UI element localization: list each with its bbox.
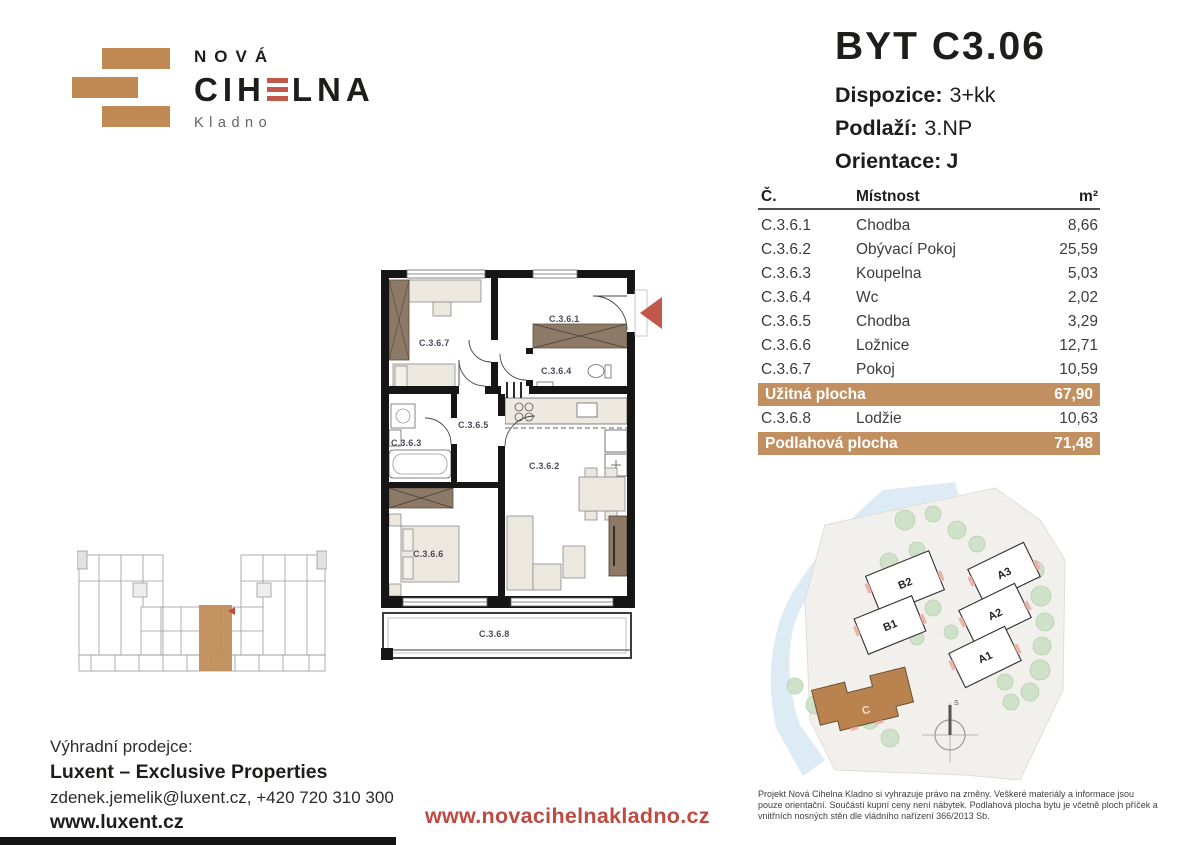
brand-logo: NOVÁ CIH LNA Kladno (70, 45, 375, 150)
table-row: C.3.6.1 Chodba 8,66 (758, 214, 1100, 238)
room-label-c368: C.3.6.8 (479, 629, 509, 639)
disclaimer-text: Projekt Nová Cihelna Kladno si vyhrazuje… (758, 789, 1160, 822)
table-row: C.3.6.6 Ložnice 12,71 (758, 334, 1100, 358)
table-row: C.3.6.7 Pokoj 10,59 (758, 358, 1100, 382)
summary-row-usable-area: Užitná plocha 67,90 (758, 383, 1100, 406)
table-row-loggia: C.3.6.8 Lodžie 10,63 (758, 407, 1100, 431)
brochure-page: NOVÁ CIH LNA Kladno BYT C3.06 Dispozice:… (0, 0, 1199, 845)
logo-cihelna-right: LNA (292, 73, 375, 106)
table-row: C.3.6.2 Obývací Pokoj 25,59 (758, 238, 1100, 262)
site-plan: B2 B1 A3 A2 A1 C (765, 480, 1085, 780)
summary-row-floor-area: Podlahová plocha 71,48 (758, 432, 1100, 455)
seller-website-link[interactable]: www.luxent.cz (50, 810, 394, 835)
room-label-c365: C.3.6.5 (458, 420, 488, 430)
room-table: Č. Místnost m² C.3.6.1 Chodba 8,66 C.3.6… (758, 185, 1100, 456)
spec-orientace: Orientace:J (835, 145, 1165, 178)
room-label-c363: C.3.6.3 (391, 438, 421, 448)
room-label-c361: C.3.6.1 (549, 314, 579, 324)
unit-header: BYT C3.06 Dispozice:3+kk Podlaží:3.NP Or… (835, 26, 1165, 178)
logo-cihelna-text: CIH LNA (194, 73, 375, 106)
room-label-c362: C.3.6.2 (529, 461, 559, 471)
unit-highlight (199, 605, 232, 671)
table-row: C.3.6.3 Koupelna 5,03 (758, 262, 1100, 286)
spec-podlazi: Podlaží:3.NP (835, 112, 1165, 145)
project-website-link[interactable]: www.novacihelnakladno.cz (425, 804, 710, 829)
logo-cihelna-left: CIH (194, 73, 266, 106)
compass-north-label: S (954, 700, 959, 707)
logo-kladno-text: Kladno (194, 115, 375, 131)
room-table-header: Č. Místnost m² (758, 185, 1100, 210)
col-room: Místnost (856, 188, 1028, 206)
col-code: Č. (758, 188, 856, 206)
building-floor-overview (77, 547, 327, 685)
logo-nova-text: NOVÁ (194, 47, 375, 67)
col-area: m² (1028, 188, 1100, 206)
table-row: C.3.6.5 Chodba 3,29 (758, 310, 1100, 334)
spec-dispozice: Dispozice:3+kk (835, 79, 1165, 112)
table-row: C.3.6.4 Wc 2,02 (758, 286, 1100, 310)
seller-name: Luxent – Exclusive Properties (50, 759, 394, 785)
brick-logo-icon (70, 45, 172, 150)
room-label-c364: C.3.6.4 (541, 366, 571, 376)
seller-contact[interactable]: zdenek.jemelik@luxent.cz, +420 720 310 3… (50, 785, 394, 810)
cihelna-e-bars-icon (267, 78, 288, 102)
room-label-c367: C.3.6.7 (419, 338, 449, 348)
room-label-c366: C.3.6.6 (413, 549, 443, 559)
apartment-floorplan: C.3.6.7 C.3.6.1 C.3.6.4 C.3.6.5 C.3.6.3 … (381, 266, 666, 671)
seller-label: Výhradní prodejce: (50, 735, 394, 759)
footer-bar (0, 837, 396, 845)
seller-block: Výhradní prodejce: Luxent – Exclusive Pr… (50, 735, 394, 835)
unit-title: BYT C3.06 (835, 26, 1165, 69)
